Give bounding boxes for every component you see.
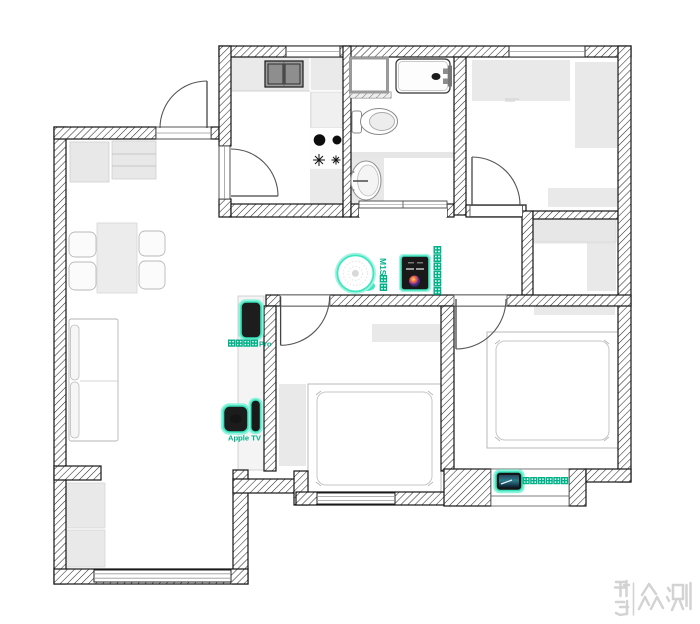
svg-text:Pro: Pro [259, 340, 272, 349]
svg-text:M1S: M1S [378, 258, 388, 276]
svg-text:Apple TV: Apple TV [228, 434, 262, 443]
